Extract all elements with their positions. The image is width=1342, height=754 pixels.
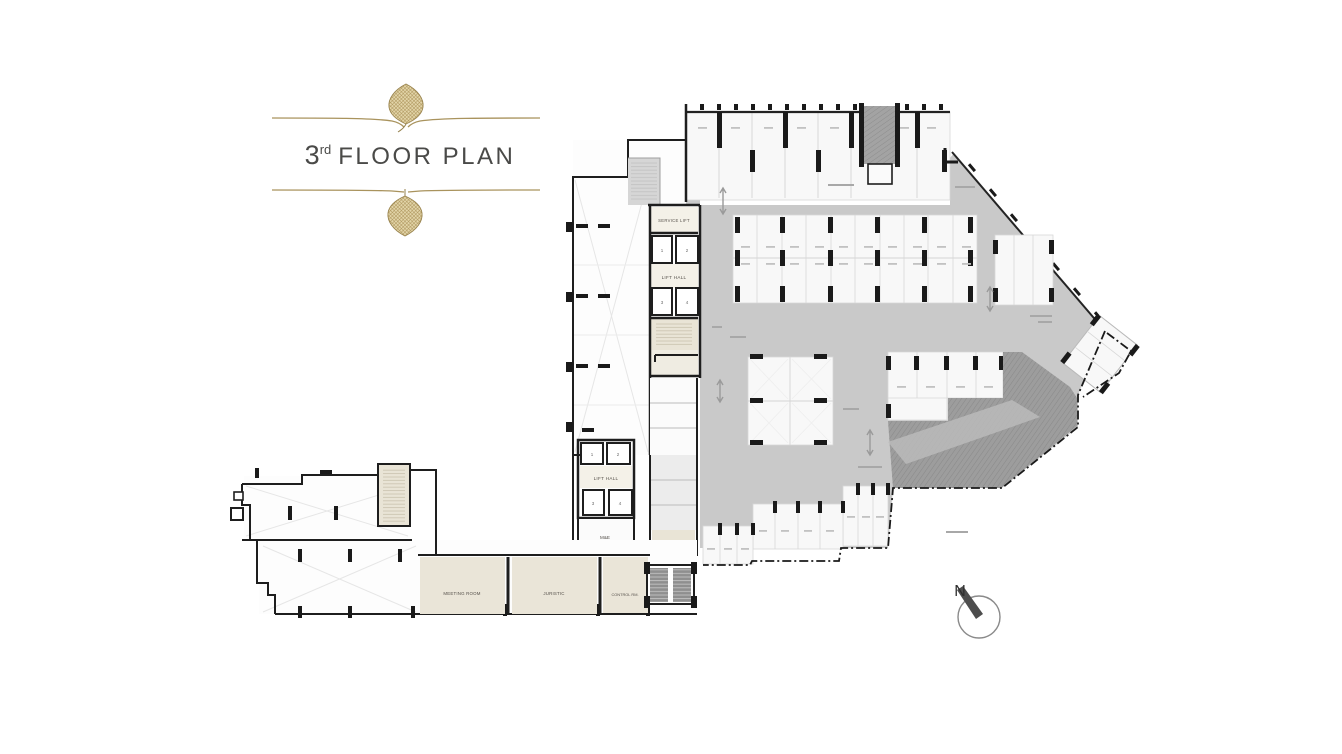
escalator-pair (644, 562, 697, 608)
service-lift-label: SERVICE LIFT (658, 218, 690, 223)
parking-block-right-end (993, 235, 1054, 305)
ornament-top (272, 84, 540, 132)
parking-island-block (748, 354, 833, 445)
ornament-bottom (272, 189, 540, 236)
meeting-room (420, 557, 505, 614)
leaf-icon (389, 84, 423, 132)
floor-plan-canvas: 3rdFLOOR PLAN (0, 0, 1342, 754)
parking-block-middle-upper (733, 215, 977, 303)
control-room-label: CONTROL RM. (611, 592, 638, 597)
compass: N (954, 583, 1000, 638)
control-room (603, 557, 648, 613)
room-strip: MEETING ROOM JURISTIC CONTROL RM. (420, 557, 648, 614)
core-room-strip (650, 378, 697, 556)
meeting-room-label: MEETING ROOM (443, 591, 480, 596)
compass-circle (958, 596, 1000, 638)
stair-shaft-west (378, 464, 410, 526)
lift-hall-lower-label: LIFT HALL (594, 476, 619, 481)
lift-hall-upper-label: LIFT HALL (662, 275, 687, 280)
juristic-room (512, 557, 597, 614)
parking-row-top (686, 103, 958, 200)
juristic-label: JURISTIC (543, 591, 564, 596)
compass-north-label: N (954, 583, 966, 600)
title-block: 3rdFLOOR PLAN (272, 84, 540, 236)
me-room-label: M&E (600, 535, 610, 540)
floor-plan-page: 3rdFLOOR PLAN (0, 0, 1342, 754)
escalator-top (628, 158, 660, 205)
lift-core-lower: 1 2 LIFT HALL 3 4 M&E (578, 440, 634, 554)
leaf-icon (388, 189, 422, 236)
parking-aisle (700, 153, 1105, 548)
floor-plan: SERVICE LIFT 1 2 LIFT HALL 3 4 (231, 103, 1140, 618)
page-title: 3rdFLOOR PLAN (305, 140, 516, 170)
